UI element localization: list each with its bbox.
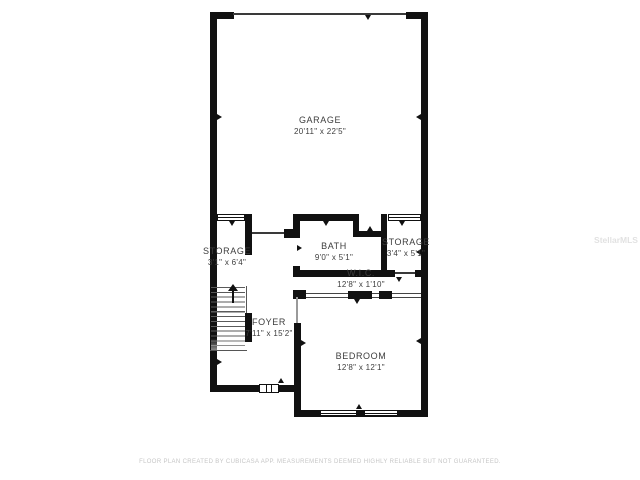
window-symbol	[320, 410, 357, 416]
disclaimer-text: FLOOR PLAN CREATED BY CUBICASA APP. MEAS…	[139, 459, 501, 465]
room-label-foyer: FOYER 7'11" x 15'2"	[245, 317, 292, 339]
room-dimensions: 7'11" x 15'2"	[245, 329, 292, 339]
room-label-bedroom: BEDROOM 12'8" x 12'1"	[336, 351, 387, 373]
stairs-up-arrow-head	[228, 284, 238, 291]
room-dimensions: 20'11" x 22'5"	[294, 127, 346, 137]
room-name: STORAGE	[203, 246, 251, 257]
door-tick	[229, 221, 235, 226]
bath-left-wall-upper	[293, 214, 300, 238]
top-left-wall-corner	[210, 12, 234, 19]
room-name: GARAGE	[294, 115, 346, 126]
wall-tick	[416, 114, 421, 120]
window-symbol	[217, 214, 245, 221]
stairs-up-arrow	[232, 290, 234, 303]
room-label-wic: W.I.C. 12'8" x 1'10"	[337, 268, 385, 290]
room-dimensions: 3'4" x 5'1"	[382, 249, 430, 259]
room-name: FOYER	[245, 317, 292, 328]
floor-plan-canvas: GARAGE 20'11" x 22'5" BATH 9'0" x 5'1" S…	[0, 0, 640, 480]
foyer-bottom-wall-right	[278, 385, 301, 392]
door-tick	[323, 221, 329, 226]
door-tick	[365, 15, 371, 20]
wall-stub	[284, 229, 293, 238]
room-label-garage: GARAGE 20'11" x 22'5"	[294, 115, 346, 137]
right-exterior-wall	[421, 12, 428, 417]
stellar-mls-watermark: StellarMLS	[594, 235, 638, 245]
room-name: W.I.C.	[337, 268, 385, 279]
storage-door-opening-line	[395, 272, 415, 274]
window-tick	[356, 404, 362, 409]
room-dimensions: 3'1" x 6'4"	[203, 258, 251, 268]
front-door-tick	[278, 378, 284, 383]
bath-door-tick	[297, 245, 302, 251]
wic-bottom-left-stub	[293, 290, 306, 299]
wall-tick	[217, 114, 222, 120]
bedroom-door-opening-line	[296, 297, 298, 323]
bedroom-bottom-wall	[294, 410, 428, 417]
garage-door-opening-line	[233, 13, 407, 15]
window-symbol	[364, 410, 398, 416]
room-name: STORAGE	[382, 237, 430, 248]
garage-entry-opening-line	[252, 232, 284, 234]
foyer-bottom-wall	[210, 385, 260, 392]
bedroom-left-wall	[294, 323, 301, 417]
bath-top-wall	[293, 214, 359, 221]
room-dimensions: 12'8" x 1'10"	[337, 280, 385, 290]
room-label-bath: BATH 9'0" x 5'1"	[315, 241, 353, 263]
staircase-bottom-line	[210, 350, 247, 351]
room-name: BATH	[315, 241, 353, 252]
wic-top-wall-right	[415, 270, 421, 277]
wic-sliding-door-bar	[348, 291, 372, 299]
storage-door-tick	[396, 277, 402, 282]
wic-door-tick	[354, 299, 360, 304]
wall-tick	[416, 338, 421, 344]
wall-tick	[301, 340, 306, 346]
room-label-storage-left: STORAGE 3'1" x 6'4"	[203, 246, 251, 268]
door-tick	[399, 221, 405, 226]
window-symbol	[388, 214, 421, 221]
staircase-edge-line	[246, 286, 247, 313]
room-label-storage-right: STORAGE 3'4" x 5'1"	[382, 237, 430, 259]
door-tick	[367, 226, 373, 231]
front-door-symbol	[259, 384, 279, 393]
wall-tick	[217, 359, 222, 365]
room-dimensions: 12'8" x 12'1"	[336, 363, 387, 373]
room-dimensions: 9'0" x 5'1"	[315, 253, 353, 263]
room-name: BEDROOM	[336, 351, 387, 362]
wic-bottom-stub	[379, 291, 392, 299]
